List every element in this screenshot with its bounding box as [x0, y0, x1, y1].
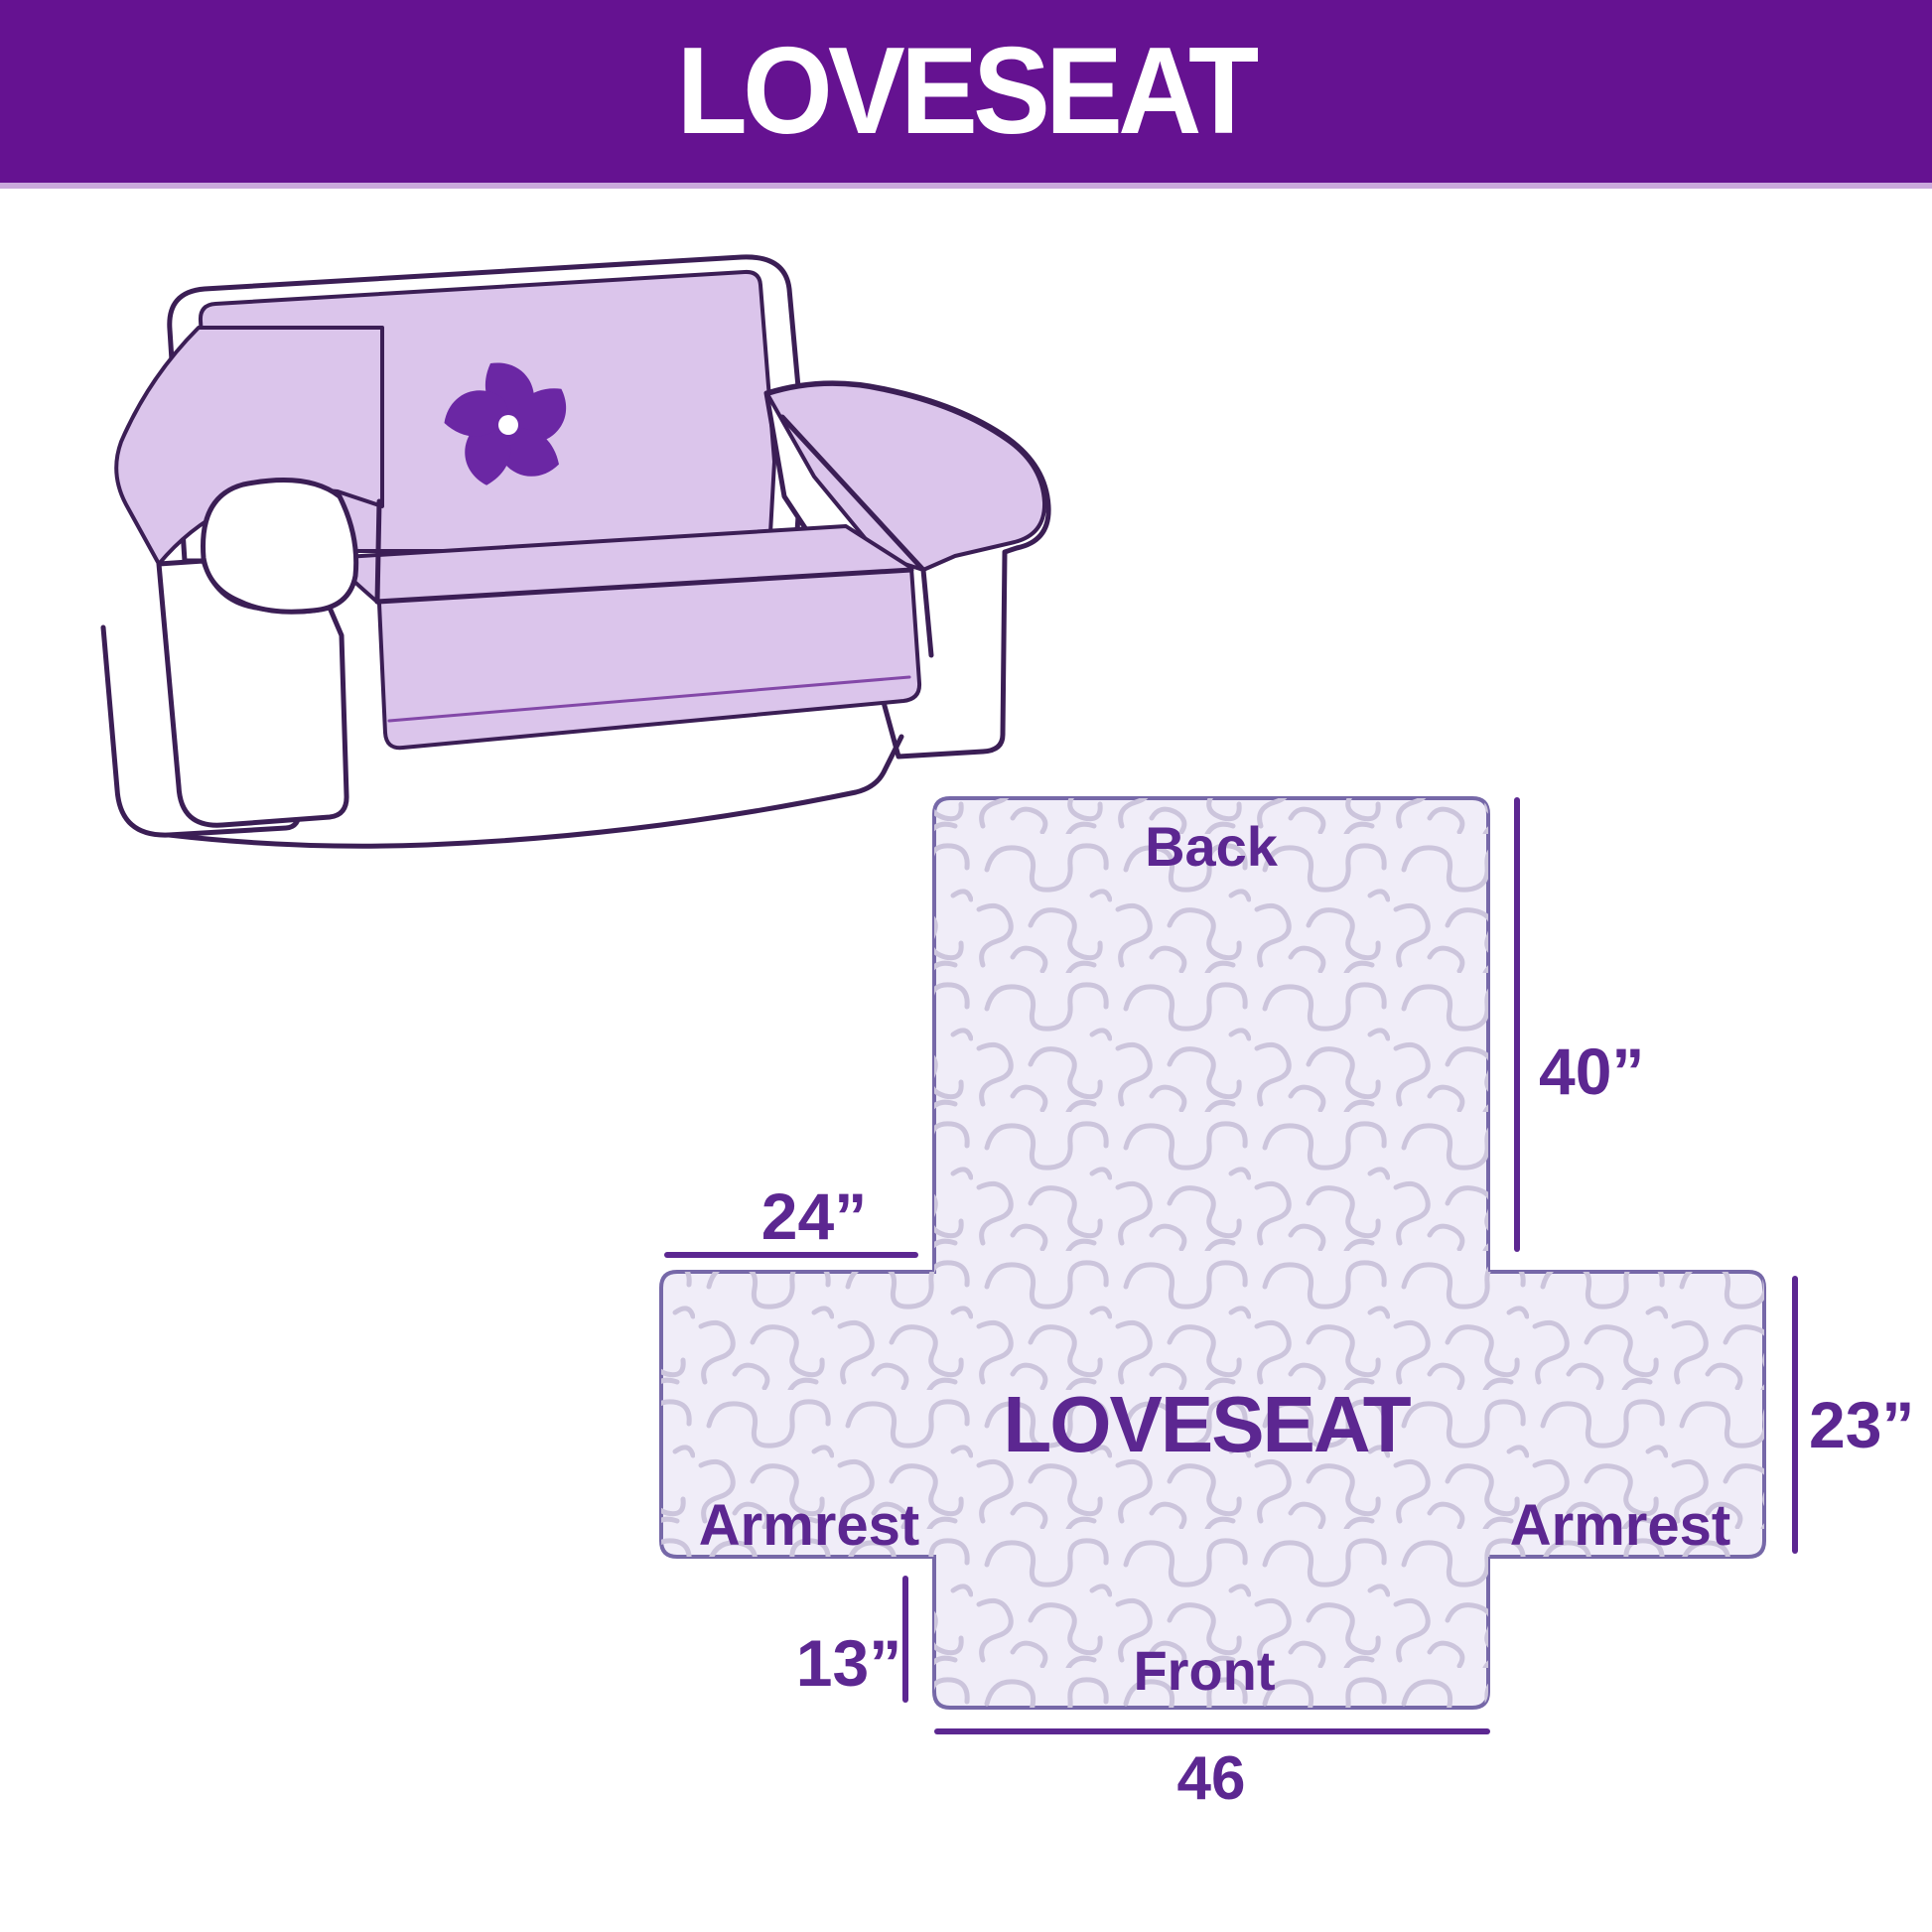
back-label: Back	[1145, 815, 1279, 878]
page-title: LOVESEAT	[677, 21, 1255, 162]
front-height-value: 13”	[796, 1626, 901, 1700]
front-width-value: 46	[1177, 1744, 1246, 1813]
front-label: Front	[1133, 1639, 1275, 1702]
armrest-width-value: 24”	[761, 1179, 867, 1253]
infographic-canvas: LOVESEAT	[0, 0, 1932, 1932]
center-label: LOVESEAT	[1003, 1380, 1411, 1468]
cover-diagram: Back LOVESEAT Armrest Armrest Front 40” …	[635, 755, 1932, 1866]
sofa-seat-cover	[330, 526, 919, 748]
sofa-left-crease	[377, 501, 379, 602]
sofa-left-arm-roll	[204, 481, 356, 613]
armrest-left-label: Armrest	[699, 1493, 919, 1558]
armrest-right-label: Armrest	[1510, 1493, 1730, 1558]
back-height-value: 40”	[1539, 1035, 1644, 1108]
armrest-height-value: 23”	[1809, 1388, 1914, 1461]
title-banner: LOVESEAT	[0, 0, 1932, 189]
